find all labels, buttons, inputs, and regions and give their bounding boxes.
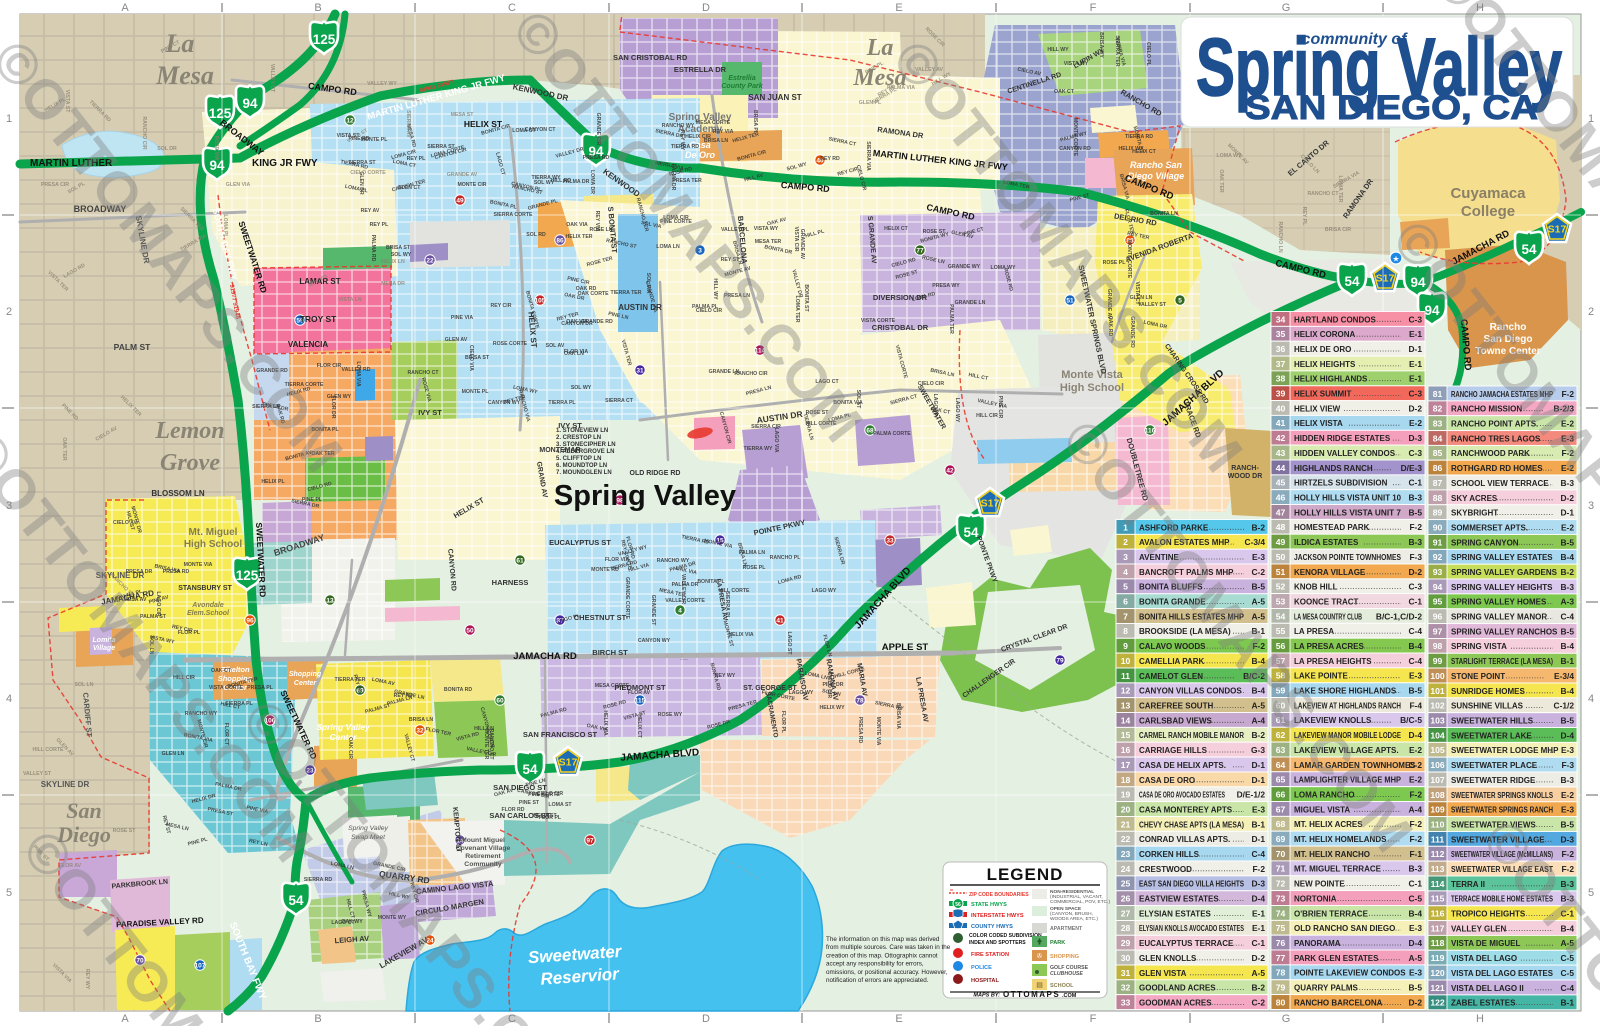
svg-text:42: 42 <box>1276 433 1286 443</box>
svg-text:BRISA LN: BRISA LN <box>409 717 434 723</box>
svg-text:CIELO PL: CIELO PL <box>1145 42 1151 67</box>
svg-text:HELIX CT: HELIX CT <box>636 714 642 738</box>
svg-text:REY PL: REY PL <box>407 156 426 162</box>
svg-text:93: 93 <box>1433 567 1443 577</box>
svg-text:D-1: D-1 <box>1561 508 1575 518</box>
svg-text:F-3: F-3 <box>1409 552 1422 562</box>
svg-text:65: 65 <box>1276 775 1286 785</box>
svg-text:TIERRA ST: TIERRA ST <box>348 160 376 166</box>
svg-text:111: 111 <box>1431 834 1445 844</box>
svg-text:74: 74 <box>1276 908 1286 918</box>
svg-text:31: 31 <box>1121 968 1131 978</box>
svg-text:RANCHO LN: RANCHO LN <box>1277 221 1283 252</box>
svg-text:OLD RANCHO SAN DIEGO: OLD RANCHO SAN DIEGO <box>1294 924 1395 933</box>
svg-text:O'BRIEN TERRACE: O'BRIEN TERRACE <box>1294 909 1369 918</box>
svg-text:SIERRA VIA: SIERRA VIA <box>865 141 871 171</box>
svg-text:BRISA ST: BRISA ST <box>465 355 490 361</box>
svg-text:78: 78 <box>856 698 864 705</box>
svg-text:NEW POINTE: NEW POINTE <box>1294 880 1345 889</box>
svg-text:87: 87 <box>1433 478 1443 488</box>
svg-text:B-3: B-3 <box>1409 537 1423 547</box>
svg-text:RANCHO CIR: RANCHO CIR <box>141 116 147 149</box>
svg-text:OAK CT: OAK CT <box>211 668 232 674</box>
svg-text:REY AV: REY AV <box>361 208 380 214</box>
svg-text:32: 32 <box>1121 983 1131 993</box>
svg-text:B-3: B-3 <box>1409 864 1423 874</box>
svg-text:HELIX CIR: HELIX CIR <box>685 134 711 140</box>
svg-text:77: 77 <box>916 248 924 255</box>
svg-text:D-1: D-1 <box>1252 775 1266 785</box>
svg-text:E-1: E-1 <box>1409 359 1422 369</box>
svg-text:EASTVIEW ESTATES: EASTVIEW ESTATES <box>1139 895 1219 904</box>
svg-text:LOMA WY: LOMA WY <box>1217 153 1242 159</box>
svg-text:notification of errors are app: notification of errors are appreciated. <box>826 977 929 984</box>
svg-text:GOODMAN ACRES: GOODMAN ACRES <box>1139 999 1212 1008</box>
svg-text:54: 54 <box>1344 274 1360 289</box>
svg-text:5. CLIFFTOP LN: 5. CLIFFTOP LN <box>556 456 601 462</box>
svg-text:Monte Vista: Monte Vista <box>1061 369 1123 381</box>
svg-text:MESA CORTE: MESA CORTE <box>696 120 731 126</box>
svg-text:SOL WY: SOL WY <box>534 180 555 186</box>
svg-text:Lemon: Lemon <box>154 418 224 444</box>
svg-text:LAGO ST: LAGO ST <box>786 631 792 655</box>
svg-text:86: 86 <box>1433 463 1443 473</box>
svg-text:A-5: A-5 <box>1252 968 1266 978</box>
svg-text:BLOSSOM LN: BLOSSOM LN <box>151 489 205 498</box>
svg-text:ROSE CORTE: ROSE CORTE <box>493 341 528 347</box>
svg-text:GRANDE RD: GRANDE RD <box>581 319 613 325</box>
svg-text:Mesa: Mesa <box>155 61 214 90</box>
svg-text:F-1: F-1 <box>1409 849 1422 859</box>
svg-text:2: 2 <box>6 306 12 318</box>
svg-text:PANORAMA: PANORAMA <box>1294 939 1341 948</box>
svg-text:VALLEY GLEN: VALLEY GLEN <box>1451 924 1506 933</box>
svg-text:95: 95 <box>1433 597 1443 607</box>
svg-text:116: 116 <box>1145 428 1156 435</box>
svg-text:1: 1 <box>6 113 12 125</box>
svg-text:20: 20 <box>1121 804 1131 814</box>
svg-text:47: 47 <box>1276 507 1286 517</box>
svg-text:HOLLY HILLS VISTA UNIT 7: HOLLY HILLS VISTA UNIT 7 <box>1294 508 1402 517</box>
svg-text:56: 56 <box>955 902 961 908</box>
svg-text:GLEN CT: GLEN CT <box>398 185 422 191</box>
svg-text:RANCHO PL: RANCHO PL <box>770 555 802 561</box>
svg-text:C-4: C-4 <box>1252 849 1266 859</box>
svg-text:KNOB HILL: KNOB HILL <box>1294 583 1338 592</box>
svg-text:B-4: B-4 <box>1561 641 1575 651</box>
svg-text:17: 17 <box>1121 760 1131 770</box>
svg-text:FLOR PL: FLOR PL <box>539 815 562 821</box>
svg-text:MT. MIGUEL TERRACE: MT. MIGUEL TERRACE <box>1294 865 1382 874</box>
svg-text:PINE CORTE: PINE CORTE <box>528 792 560 798</box>
svg-text:C-3: C-3 <box>1409 582 1423 592</box>
svg-text:PRESA DR: PRESA DR <box>126 569 153 575</box>
svg-text:San: San <box>66 798 101 823</box>
svg-text:D-1: D-1 <box>1252 760 1266 770</box>
svg-text:GLEN VIA: GLEN VIA <box>226 182 251 188</box>
svg-text:96: 96 <box>1433 612 1443 622</box>
svg-text:Grove: Grove <box>160 450 220 476</box>
svg-text:SUNSHINE VILLAS: SUNSHINE VILLAS <box>1451 702 1524 711</box>
svg-text:STATE HWYS: STATE HWYS <box>971 902 1007 908</box>
svg-text:E: E <box>895 1013 902 1025</box>
svg-text:41: 41 <box>1276 418 1286 428</box>
svg-text:HARTLAND CONDOS: HARTLAND CONDOS <box>1294 315 1376 324</box>
svg-text:8: 8 <box>1123 626 1128 636</box>
svg-text:12: 12 <box>1121 686 1131 696</box>
svg-text:B-5: B-5 <box>1561 716 1575 726</box>
svg-text:HELIX PL: HELIX PL <box>261 479 285 485</box>
svg-text:MAPS BY:: MAPS BY: <box>973 993 1000 999</box>
svg-text:CALAVO WOODS: CALAVO WOODS <box>1139 642 1206 651</box>
svg-text:F-2: F-2 <box>1409 522 1422 532</box>
svg-text:B-2: B-2 <box>1252 730 1266 740</box>
svg-text:2. CRESTOP LN: 2. CRESTOP LN <box>556 435 601 441</box>
svg-text:VISTA DEL LAGO II: VISTA DEL LAGO II <box>1451 984 1524 993</box>
svg-text:ELYSIAN ESTATES: ELYSIAN ESTATES <box>1139 909 1212 918</box>
svg-text:SOL RD: SOL RD <box>526 232 546 238</box>
svg-text:51: 51 <box>1276 567 1286 577</box>
svg-text:E: E <box>895 2 902 14</box>
svg-text:C-3: C-3 <box>1409 314 1423 324</box>
svg-text:BRISA PL: BRISA PL <box>752 110 758 135</box>
svg-text:✇: ✇ <box>1037 952 1043 960</box>
svg-text:LOMA DR: LOMA DR <box>589 170 595 194</box>
svg-text:63: 63 <box>1276 745 1286 755</box>
svg-text:39: 39 <box>1276 389 1286 399</box>
svg-text:PALMA DR: PALMA DR <box>563 179 590 185</box>
svg-text:CAMELLIA PARK: CAMELLIA PARK <box>1139 657 1205 666</box>
svg-text:F: F <box>1090 1013 1097 1025</box>
svg-text:105: 105 <box>1430 745 1445 755</box>
svg-text:119: 119 <box>1431 953 1445 963</box>
svg-text:76: 76 <box>1276 938 1286 948</box>
svg-text:97: 97 <box>1433 626 1443 636</box>
svg-text:MONTE CORTE: MONTE CORTE <box>1126 240 1132 279</box>
svg-text:.COM: .COM <box>1062 993 1077 999</box>
svg-text:30: 30 <box>1121 953 1131 963</box>
svg-text:13: 13 <box>326 598 334 605</box>
svg-text:125: 125 <box>313 32 336 47</box>
svg-text:80: 80 <box>1276 997 1286 1007</box>
svg-text:38: 38 <box>1276 374 1286 384</box>
svg-text:4: 4 <box>6 693 12 705</box>
svg-text:3: 3 <box>1123 552 1128 562</box>
svg-text:101: 101 <box>1430 686 1445 696</box>
svg-text:5: 5 <box>6 887 12 899</box>
svg-text:B-3: B-3 <box>1561 775 1575 785</box>
svg-text:B-1: B-1 <box>1561 998 1575 1008</box>
svg-text:MONTE PL: MONTE PL <box>462 389 490 395</box>
svg-text:REY WY: REY WY <box>715 673 736 679</box>
svg-text:STONE POINT: STONE POINT <box>1451 672 1505 681</box>
svg-text:PALM ST: PALM ST <box>114 342 151 352</box>
svg-text:FLOR CIR: FLOR CIR <box>317 363 342 369</box>
svg-text:22: 22 <box>1121 834 1131 844</box>
svg-text:49: 49 <box>1276 537 1286 547</box>
svg-text:EUCALYPTUS ST: EUCALYPTUS ST <box>549 538 611 547</box>
svg-text:100: 100 <box>1430 671 1445 681</box>
svg-text:FLOR VIA: FLOR VIA <box>564 349 588 355</box>
svg-text:2: 2 <box>1588 306 1594 318</box>
svg-text:75: 75 <box>1276 923 1286 933</box>
svg-text:RANCH-: RANCH- <box>1231 465 1259 472</box>
svg-text:COLOR CODED SUBDIVISION: COLOR CODED SUBDIVISION <box>969 933 1042 939</box>
svg-text:BRISA CIR: BRISA CIR <box>1325 227 1352 233</box>
svg-text:A-3: A-3 <box>1561 597 1575 607</box>
svg-text:Mount Miguel: Mount Miguel <box>461 837 505 844</box>
svg-text:D-3: D-3 <box>1561 834 1575 844</box>
svg-text:REY PL: REY PL <box>1301 207 1307 226</box>
svg-text:D-4: D-4 <box>1409 938 1423 948</box>
svg-text:D-4: D-4 <box>1252 894 1266 904</box>
svg-text:ZABEL ESTATES: ZABEL ESTATES <box>1451 999 1516 1008</box>
svg-text:SWEETWATER RIDGE: SWEETWATER RIDGE <box>1451 776 1536 785</box>
svg-text:D-3: D-3 <box>1252 879 1266 889</box>
svg-text:SWEETWATER HILLS: SWEETWATER HILLS <box>1451 717 1534 726</box>
svg-text:SPRING VALLEY GARDENS: SPRING VALLEY GARDENS <box>1451 568 1558 577</box>
svg-text:COUNTY HWYS: COUNTY HWYS <box>971 924 1013 930</box>
svg-text:B-4: B-4 <box>1409 641 1423 651</box>
svg-text:4: 4 <box>1123 567 1128 577</box>
svg-text:C-1: C-1 <box>1409 478 1423 488</box>
svg-text:GRANDE LN: GRANDE LN <box>955 300 986 306</box>
svg-text:42: 42 <box>946 468 954 475</box>
svg-text:HOSPITAL: HOSPITAL <box>971 978 999 984</box>
svg-text:SOL VIA: SOL VIA <box>645 273 651 294</box>
svg-text:B-2: B-2 <box>1252 522 1266 532</box>
svg-text:F-4: F-4 <box>1409 700 1422 710</box>
svg-text:B-2: B-2 <box>1561 567 1575 577</box>
svg-text:D/E-1/2: D/E-1/2 <box>1237 790 1266 800</box>
svg-text:E-1: E-1 <box>1409 374 1422 384</box>
svg-text:82: 82 <box>1433 404 1443 414</box>
svg-text:54: 54 <box>1276 611 1286 621</box>
svg-text:103: 103 <box>1430 716 1445 726</box>
svg-text:SCHOOL: SCHOOL <box>1050 983 1074 989</box>
svg-text:VISTA DEL LAGO ESTATES: VISTA DEL LAGO ESTATES <box>1451 969 1554 978</box>
svg-text:High School: High School <box>1060 382 1124 394</box>
svg-text:PARK GLEN ESTATES: PARK GLEN ESTATES <box>1294 954 1379 963</box>
svg-text:71: 71 <box>1276 864 1286 874</box>
svg-text:GOODLAND ACRES: GOODLAND ACRES <box>1139 984 1216 993</box>
svg-text:MONTE VIA: MONTE VIA <box>875 717 881 746</box>
svg-text:C-2: C-2 <box>1252 567 1266 577</box>
svg-text:9: 9 <box>1123 641 1128 651</box>
svg-text:HILL CIR: HILL CIR <box>976 413 998 419</box>
svg-text:MONTE VIA: MONTE VIA <box>184 562 213 568</box>
svg-text:CASA MONTEREY APTS: CASA MONTEREY APTS <box>1139 805 1233 814</box>
svg-text:F-2: F-2 <box>1409 790 1422 800</box>
svg-text:D/E-3: D/E-3 <box>1401 463 1423 473</box>
svg-text:from multiple sources. Care wa: from multiple sources. Care was taken in… <box>826 944 951 951</box>
svg-text:LAGO WY: LAGO WY <box>812 588 837 594</box>
svg-text:S17: S17 <box>1548 224 1567 236</box>
svg-text:C-4: C-4 <box>1561 612 1575 622</box>
svg-text:121: 121 <box>1430 983 1445 993</box>
svg-text:LOMA PL: LOMA PL <box>222 214 228 238</box>
svg-text:6: 6 <box>1123 597 1128 607</box>
svg-text:SWEETWATER LODGE MHP: SWEETWATER LODGE MHP <box>1451 746 1559 755</box>
svg-text:SIERRA AV: SIERRA AV <box>405 110 411 138</box>
svg-text:CASA DE ORO: CASA DE ORO <box>1139 776 1195 785</box>
svg-text:52: 52 <box>1276 582 1286 592</box>
svg-text:PINE ST: PINE ST <box>519 800 540 806</box>
svg-text:ILDICA ESTATES: ILDICA ESTATES <box>1294 538 1359 547</box>
svg-text:E-3/4: E-3/4 <box>1554 671 1574 681</box>
svg-text:D-2: D-2 <box>1561 493 1575 503</box>
svg-text:C-3/4: C-3/4 <box>1245 537 1266 547</box>
svg-text:TIERRA TER: TIERRA TER <box>611 290 642 296</box>
svg-text:VISTA LN: VISTA LN <box>338 297 361 303</box>
svg-text:SPRING VALLEY HEIGHTS: SPRING VALLEY HEIGHTS <box>1451 583 1553 592</box>
svg-text:SOL AV: SOL AV <box>546 343 565 349</box>
svg-text:VISTA WY: VISTA WY <box>754 226 779 232</box>
svg-text:Covenant Village: Covenant Village <box>456 845 511 852</box>
svg-text:LEGEND: LEGEND <box>987 865 1064 884</box>
svg-text:ROSE VIA: ROSE VIA <box>213 136 219 161</box>
svg-text:B-4: B-4 <box>1409 908 1423 918</box>
svg-text:CHEVY CHASE APTS (LA MESA): CHEVY CHASE APTS (LA MESA) <box>1139 820 1244 829</box>
svg-text:INTERSTATE HWYS: INTERSTATE HWYS <box>971 913 1024 919</box>
svg-text:POINTE LAKEVIEW CONDOS: POINTE LAKEVIEW CONDOS <box>1294 969 1406 978</box>
svg-text:D-4: D-4 <box>1561 730 1575 740</box>
svg-text:CANYON WY: CANYON WY <box>638 638 671 644</box>
svg-text:OAK TER: OAK TER <box>1218 169 1224 193</box>
svg-text:31: 31 <box>636 368 644 375</box>
svg-text:E-3: E-3 <box>1409 923 1422 933</box>
svg-text:B-5: B-5 <box>1561 819 1575 829</box>
svg-text:PRESA WY: PRESA WY <box>932 283 960 289</box>
svg-text:CRESTWOOD: CRESTWOOD <box>1139 865 1192 874</box>
svg-text:88: 88 <box>1433 493 1443 503</box>
svg-text:LA MESA COUNTRY CLUB: LA MESA COUNTRY CLUB <box>1294 612 1362 621</box>
svg-text:23: 23 <box>1121 849 1131 859</box>
svg-text:48: 48 <box>1276 522 1286 532</box>
svg-text:106: 106 <box>1430 760 1445 770</box>
svg-text:79: 79 <box>1276 983 1286 993</box>
svg-text:B-3: B-3 <box>1561 582 1575 592</box>
svg-text:La: La <box>866 35 894 61</box>
svg-text:B-4: B-4 <box>1561 552 1575 562</box>
svg-text:G: G <box>1282 2 1291 14</box>
svg-text:HILL CORTE: HILL CORTE <box>718 588 750 594</box>
svg-text:85: 85 <box>1433 448 1443 458</box>
svg-text:73: 73 <box>1276 893 1286 903</box>
svg-text:108: 108 <box>1430 790 1445 800</box>
svg-text:D-2: D-2 <box>1252 953 1266 963</box>
svg-text:SPRING VISTA: SPRING VISTA <box>1451 642 1507 651</box>
svg-text:D: D <box>702 1013 710 1025</box>
svg-text:64: 64 <box>1276 760 1286 770</box>
svg-text:SPRING VALLEY HOMES: SPRING VALLEY HOMES <box>1451 598 1547 607</box>
svg-text:MONTE CORTE: MONTE CORTE <box>1072 118 1078 157</box>
svg-text:84: 84 <box>1433 433 1443 443</box>
svg-text:GRANDE WY: GRANDE WY <box>948 264 981 270</box>
svg-text:TIERRA PL: TIERRA PL <box>548 400 576 406</box>
svg-text:HELIX VIA: HELIX VIA <box>602 710 608 736</box>
svg-text:118: 118 <box>1431 938 1445 948</box>
svg-text:CAMELOT GLEN: CAMELOT GLEN <box>1139 672 1203 681</box>
svg-text:66: 66 <box>1276 790 1286 800</box>
svg-text:33: 33 <box>1121 998 1131 1008</box>
svg-text:LAGO WY: LAGO WY <box>954 398 960 423</box>
svg-text:GRANDE ST: GRANDE ST <box>650 595 656 626</box>
svg-text:33: 33 <box>886 538 894 545</box>
svg-text:B: B <box>314 1013 321 1025</box>
svg-text:32: 32 <box>416 728 424 735</box>
svg-text:OLD RIDGE RD: OLD RIDGE RD <box>630 470 681 477</box>
svg-text:BONITA PL: BONITA PL <box>697 579 725 585</box>
svg-text:H: H <box>1476 1013 1484 1025</box>
svg-text:VALLEY WY: VALLEY WY <box>367 81 397 87</box>
svg-text:RANCHO BARCELONA: RANCHO BARCELONA <box>1294 998 1383 1007</box>
svg-text:VISTA DEL LAGO: VISTA DEL LAGO <box>1451 954 1517 963</box>
svg-text:GLEN AV: GLEN AV <box>445 337 468 343</box>
svg-text:67: 67 <box>1276 804 1286 814</box>
svg-text:RANCHWOOD PARK: RANCHWOOD PARK <box>1451 449 1530 458</box>
svg-text:C-5: C-5 <box>1409 893 1423 903</box>
svg-text:6. MOUNDTOP LN: 6. MOUNDTOP LN <box>556 463 607 469</box>
svg-text:SPRING CANYON: SPRING CANYON <box>1451 538 1519 547</box>
svg-text:IVY ST: IVY ST <box>418 408 442 417</box>
svg-text:Avondale: Avondale <box>191 602 224 609</box>
svg-text:Estrellia: Estrellia <box>728 75 755 82</box>
svg-text:▤: ▤ <box>1036 982 1043 989</box>
svg-text:omissions, or positional accur: omissions, or positional accuracy. Howev… <box>826 969 948 976</box>
svg-text:De Oro: De Oro <box>685 150 716 160</box>
svg-text:96: 96 <box>246 618 254 625</box>
svg-text:HELIX TER: HELIX TER <box>565 234 592 240</box>
svg-text:HELIX LN: HELIX LN <box>381 259 405 265</box>
svg-text:B-2: B-2 <box>1252 983 1266 993</box>
svg-text:FIRE STATION: FIRE STATION <box>971 952 1009 958</box>
svg-text:CASA DE HELIX APTS.: CASA DE HELIX APTS. <box>1139 761 1226 770</box>
svg-text:89: 89 <box>1433 508 1443 518</box>
svg-text:HELIX HIGHLANDS: HELIX HIGHLANDS <box>1294 375 1368 384</box>
svg-text:54: 54 <box>288 893 304 908</box>
svg-text:E-3: E-3 <box>1561 805 1574 815</box>
svg-text:44: 44 <box>1276 463 1286 473</box>
svg-text:18: 18 <box>1121 775 1131 785</box>
svg-text:D-1: D-1 <box>1409 344 1423 354</box>
svg-text:B-5: B-5 <box>1561 537 1575 547</box>
svg-text:16: 16 <box>1121 745 1131 755</box>
svg-text:53: 53 <box>1276 596 1286 606</box>
svg-text:34: 34 <box>1276 314 1286 324</box>
svg-text:MESA CORTE: MESA CORTE <box>595 683 630 689</box>
svg-text:SWEETWATER SPRINGS KNOLLS: SWEETWATER SPRINGS KNOLLS <box>1451 791 1554 800</box>
svg-text:CLUBHOUSE: CLUBHOUSE <box>1050 971 1083 977</box>
svg-text:91: 91 <box>1433 537 1443 547</box>
svg-text:SOL WY: SOL WY <box>391 252 412 258</box>
svg-text:43: 43 <box>1276 448 1286 458</box>
svg-text:S17: S17 <box>559 757 578 769</box>
svg-text:86: 86 <box>556 238 564 245</box>
svg-text:105: 105 <box>535 298 546 305</box>
svg-text:VALLEY RD: VALLEY RD <box>342 367 371 373</box>
svg-text:SWEETWATER PLACE: SWEETWATER PLACE <box>1451 761 1538 770</box>
svg-text:WOODS AREA, ETC.): WOODS AREA, ETC.) <box>1050 916 1098 922</box>
svg-text:46: 46 <box>1276 493 1286 503</box>
svg-text:BRISA WY: BRISA WY <box>1098 32 1104 58</box>
svg-text:60: 60 <box>496 698 504 705</box>
svg-text:B-5: B-5 <box>1409 507 1423 517</box>
svg-text:B: B <box>314 2 321 14</box>
svg-text:County Park: County Park <box>721 83 763 90</box>
svg-text:LOMA CT: LOMA CT <box>512 128 536 134</box>
svg-text:VALLEY CIR: VALLEY CIR <box>680 574 686 605</box>
